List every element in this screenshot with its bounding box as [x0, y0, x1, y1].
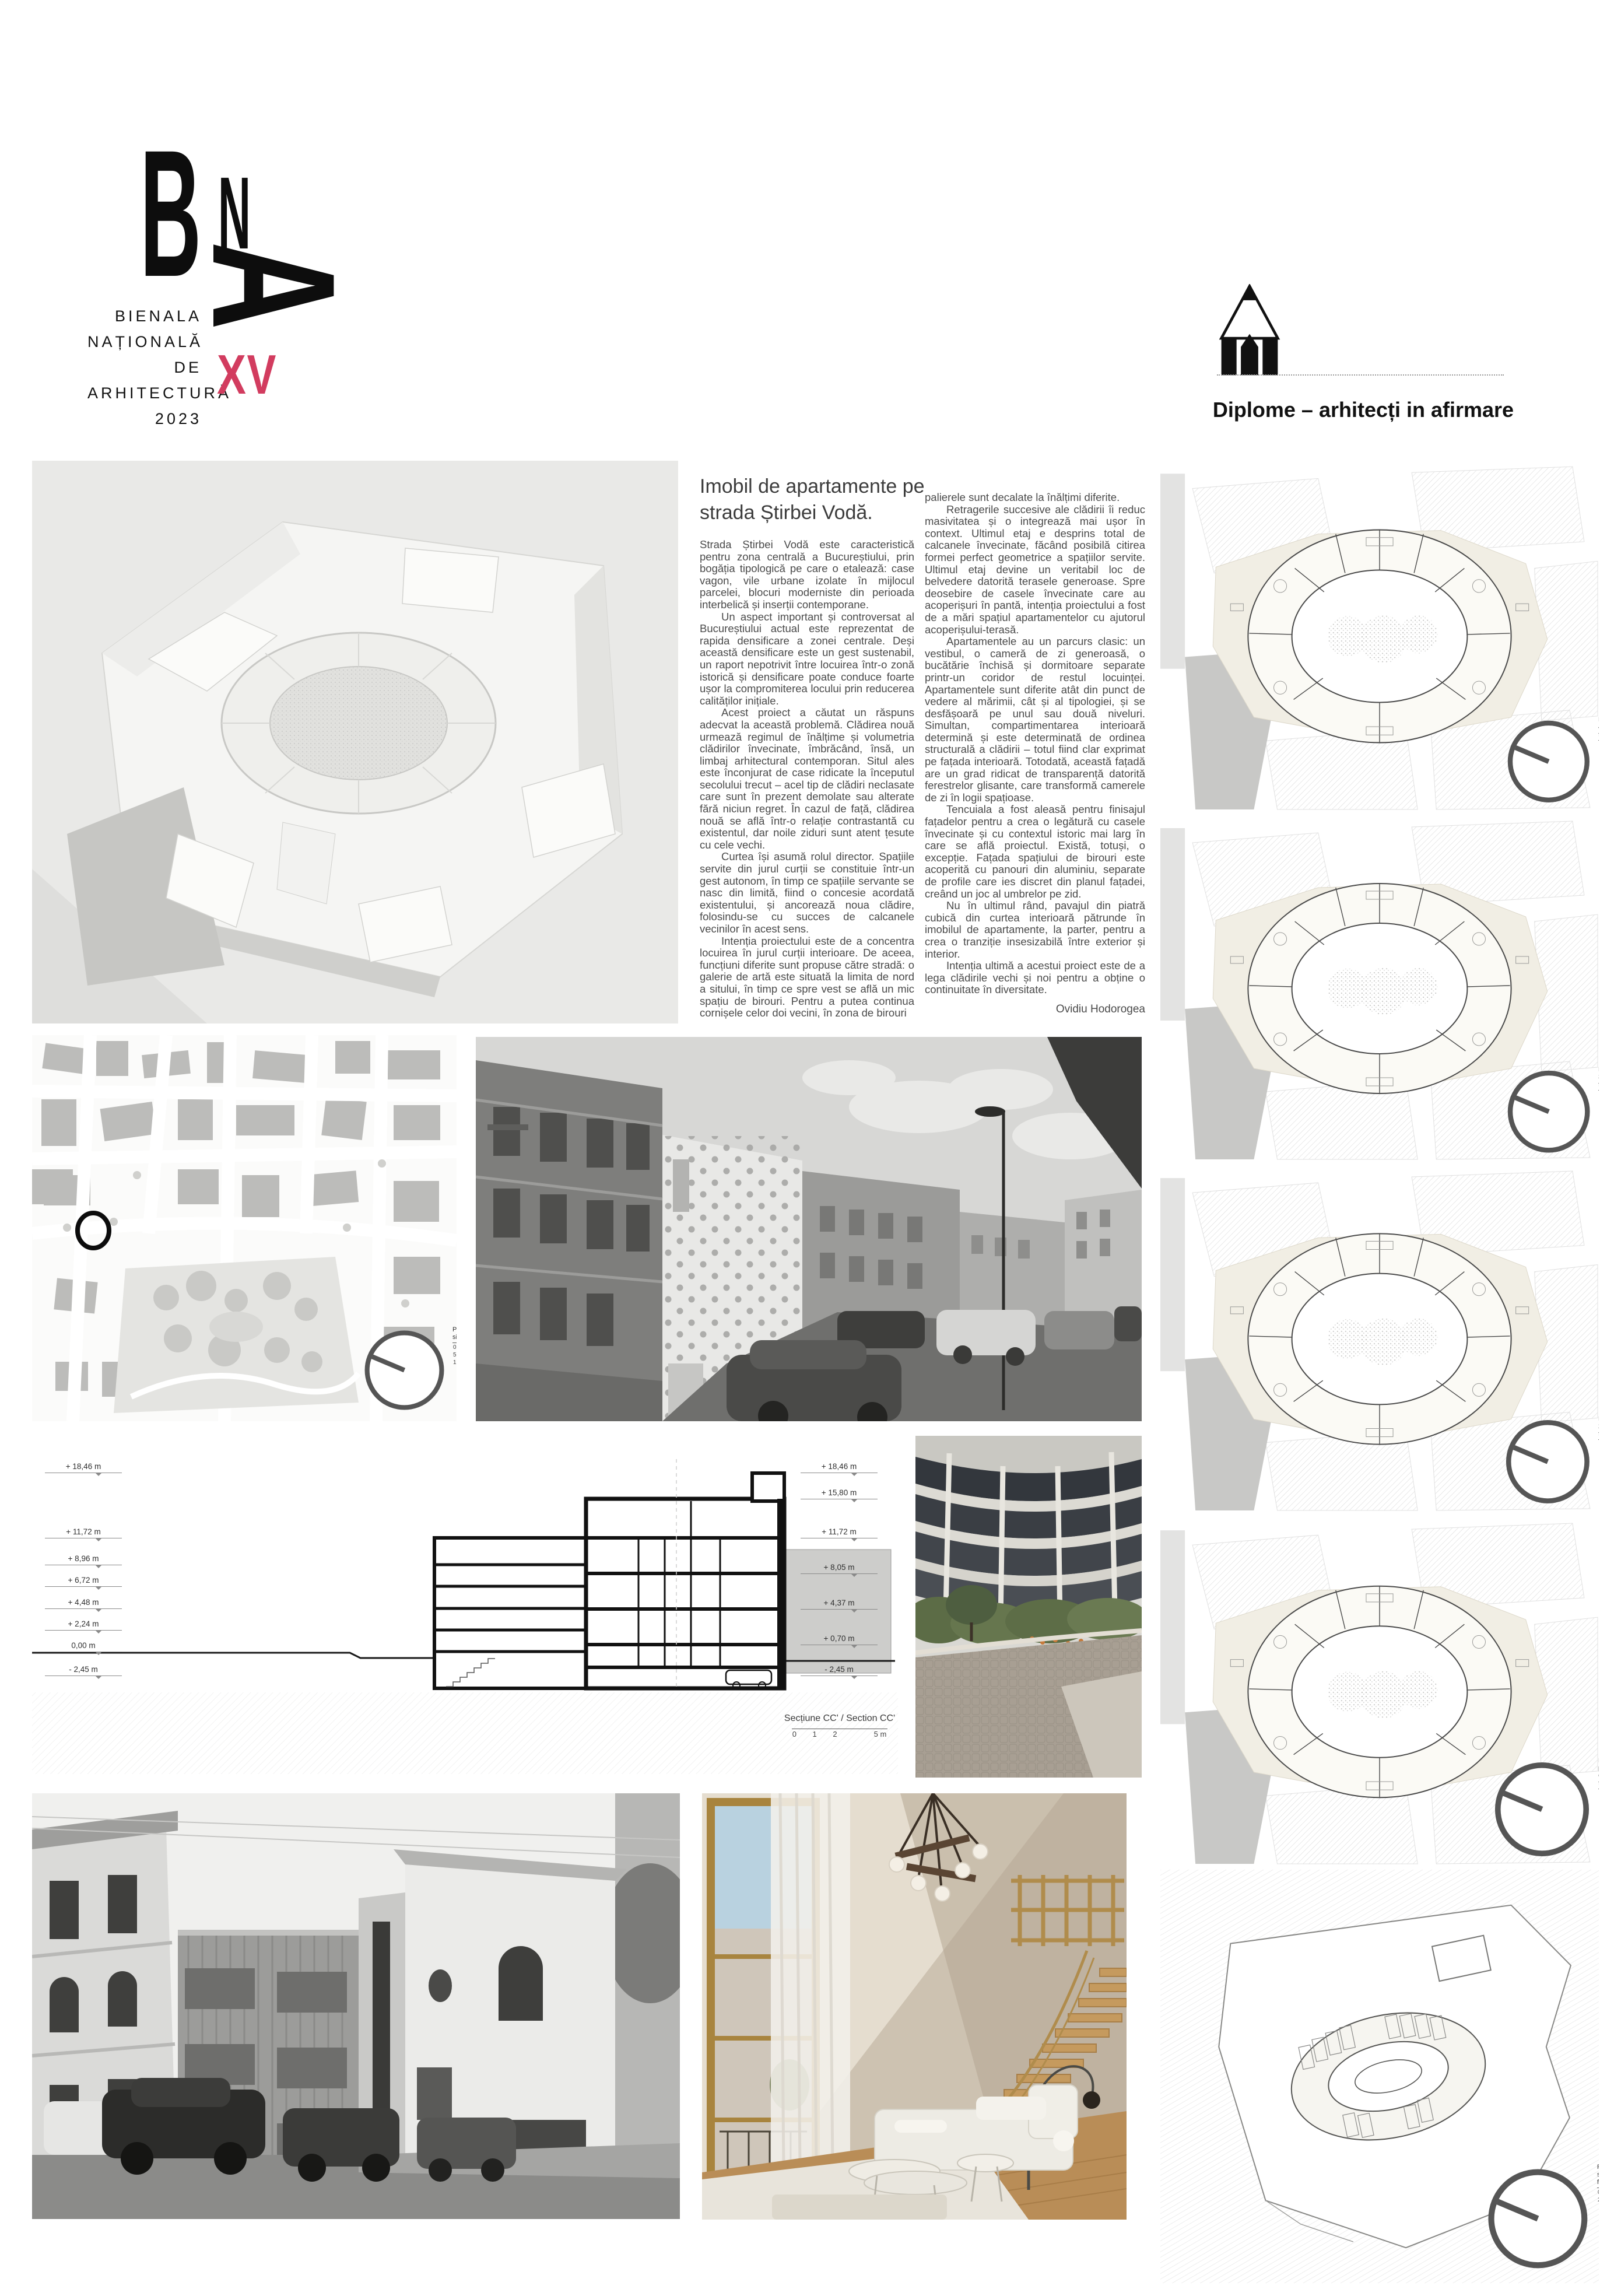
level-marker: + 4,48 m: [45, 1598, 122, 1609]
author-name: Ovidiu Hodorogea: [925, 1003, 1145, 1016]
level-marker: + 11,72 m: [45, 1527, 122, 1538]
logo-edition-xv: XV: [217, 343, 277, 407]
paragraph: Intenția ultimă a acestui proiect este d…: [925, 960, 1145, 996]
level-marker: + 18,46 m: [801, 1462, 878, 1473]
floor-plan-etaj-3: Plan etaj 3 / 3rd floor plan 0 1 25 m: [1160, 816, 1599, 1161]
paragraph: palierele sunt decalate la înălțimi dife…: [925, 492, 1145, 504]
level-marker: + 8,05 m: [801, 1563, 878, 1574]
floor-plan-caption: Plan etaj 4 / 4th floor plan 0 1 25 m: [1503, 716, 1594, 807]
street-context-photo: [476, 1037, 1142, 1421]
floor-plan-etaj-2: Plan etaj 2 / 2nd floor plan 0 1 25 m: [1160, 1166, 1599, 1512]
level-marker: + 15,80 m: [801, 1488, 878, 1499]
floor-plan-caption: Plan parter / Ground floor plan 0 1 25 m: [1490, 1757, 1594, 1862]
north-arrow-icon: [1503, 1066, 1594, 1157]
north-arrow-icon: [360, 1326, 448, 1414]
paragraph: Apartamentele au un parcurs clasic: un v…: [925, 636, 1145, 804]
interior-photo: [702, 1793, 1127, 2220]
courtyard-photo: [915, 1436, 1142, 1778]
paragraph: Tencuiala a fost aleasă pentru finisajul…: [925, 804, 1145, 900]
north-arrow-icon: [1490, 1757, 1594, 1862]
floor-plan-etaj-4: Plan etaj 4 / 4th floor plan 0 1 25 m: [1160, 462, 1599, 811]
level-marker: 0,00 m: [45, 1641, 122, 1652]
paragraph: Nu în ultimul rând, pavajul din piatră c…: [925, 900, 1145, 960]
paragraph: Acest proiect a căutat un răspuns adecva…: [700, 707, 914, 851]
level-marker: - 2,45 m: [801, 1665, 878, 1676]
logo-wordmark: BIENALA NAȚIONALĂ DE ARHITECTURĂ 2023: [87, 303, 202, 432]
paragraph: Retragerile succesive ale clădirii îi re…: [925, 504, 1145, 636]
level-marker: + 18,46 m: [45, 1462, 122, 1473]
street-elevation-photo: [32, 1793, 680, 2219]
paragraph: Intenția proiectului este de a concentra…: [700, 935, 914, 1019]
level-marker: + 4,37 m: [801, 1599, 878, 1610]
category-divider: [1217, 374, 1504, 376]
article-column-2: palierele sunt decalate la înălțimi dife…: [925, 492, 1145, 996]
north-arrow-icon: [1483, 2164, 1593, 2274]
site-plan-map: Plan de situație 0 5 10 25 m: [32, 1035, 457, 1421]
article-column-1: Strada Știrbei Vodă este caracteristică …: [700, 539, 914, 1019]
floor-plan-caption: Plan subsol/Basement floor plan 0 1 25 m: [1483, 2164, 1593, 2274]
level-marker: + 2,24 m: [45, 1620, 122, 1631]
model-photo: [32, 461, 678, 1023]
paragraph: Strada Știrbei Vodă este caracteristică …: [700, 539, 914, 611]
section-caption: Secțiune CC' / Section CC' 0 1 2 5 m: [776, 1713, 904, 1738]
floor-plan-subsol: Plan subsol/Basement floor plan 0 1 25 m: [1160, 1870, 1599, 2283]
level-marker: + 0,70 m: [801, 1634, 878, 1645]
section-drawing: + 18,46 m + 11,72 m + 8,96 m + 6,72 m + …: [32, 1436, 898, 1778]
page-title: Imobil de apartamente pe strada Știrbei …: [700, 474, 927, 526]
level-marker: + 6,72 m: [45, 1576, 122, 1587]
floor-plan-caption: Plan etaj 3 / 3rd floor plan 0 1 25 m: [1503, 1066, 1594, 1157]
poster: B N A BIENALA NAȚIONALĂ DE ARHITECTURĂ 2…: [0, 0, 1607, 2296]
paragraph: Curtea își asumă rolul director. Spațiil…: [700, 851, 914, 935]
site-plan-caption: Plan de situație 0 5 10 25 m: [360, 1326, 448, 1414]
north-arrow-icon: [1501, 1415, 1594, 1508]
floor-plan-caption: Plan etaj 2 / 2nd floor plan 0 1 25 m: [1501, 1415, 1594, 1508]
logo-letter-a: A: [176, 241, 367, 330]
north-arrow-icon: [1503, 716, 1594, 807]
level-marker: + 11,72 m: [801, 1527, 878, 1538]
pencil-icon: [1217, 284, 1282, 377]
paragraph: Un aspect important și controversat al B…: [700, 611, 914, 707]
level-marker: + 8,96 m: [45, 1554, 122, 1565]
floor-plan-parter: Plan parter / Ground floor plan 0 1 25 m: [1160, 1519, 1599, 1865]
level-marker: - 2,45 m: [45, 1665, 122, 1676]
category-label: Diplome – arhitecți in afirmare: [1200, 398, 1527, 422]
